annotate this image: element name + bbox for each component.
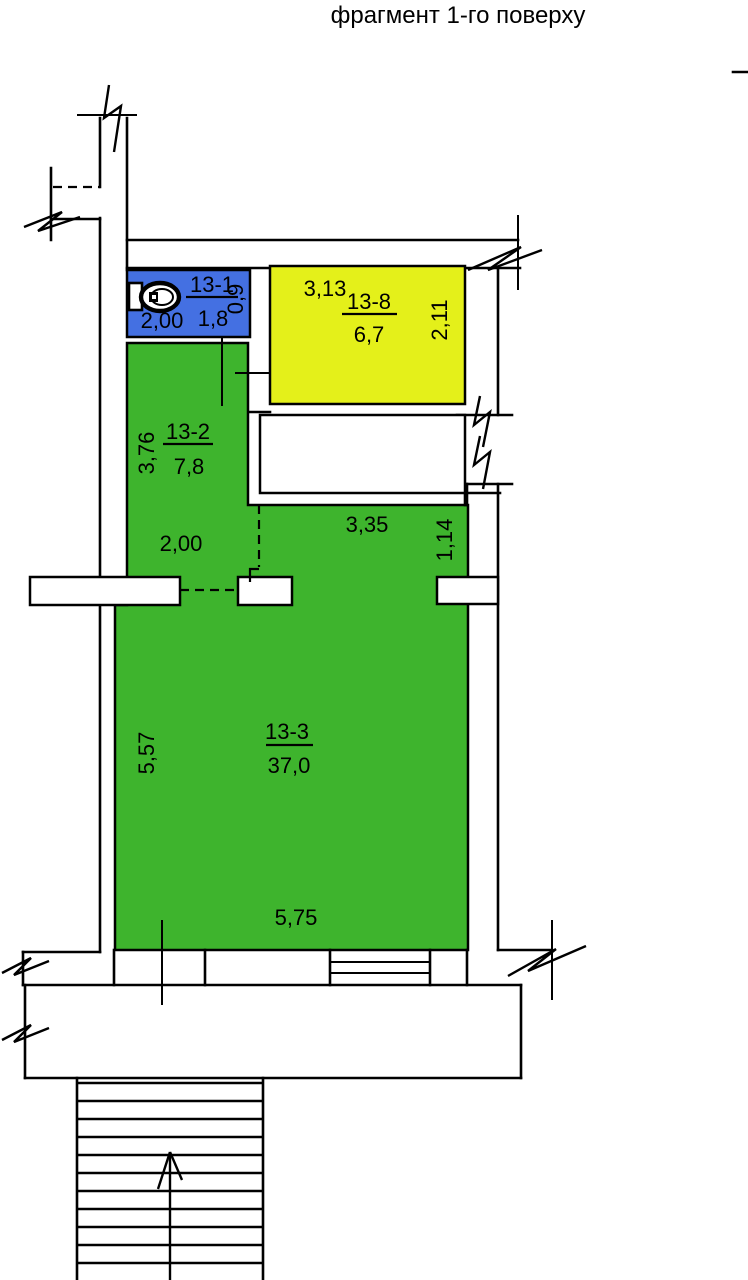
pilaster-middle <box>238 577 292 605</box>
room-13-3-area: 37,0 <box>268 753 311 778</box>
dim-hall-width: 2,00 <box>160 531 203 556</box>
room-13-2-label: 13-2 <box>166 419 210 444</box>
dim-hall-height: 3,76 <box>134 432 159 475</box>
dim-corridor-depth: 1,14 <box>432 519 457 562</box>
toilet-icon <box>129 283 179 311</box>
niche <box>260 415 465 493</box>
plan-title: фрагмент 1-го поверху <box>331 2 586 29</box>
floor-plan: фрагмент 1-го поверху <box>0 0 748 1280</box>
room-13-2-area: 7,8 <box>174 454 205 479</box>
dim-wc-depth: 0,9 <box>223 284 248 315</box>
dim-storage-width: 3,13 <box>304 276 347 301</box>
dim-main-width: 5,75 <box>275 905 318 930</box>
room-13-8-label: 13-8 <box>347 289 391 314</box>
room-13-3-label: 13-3 <box>265 719 309 744</box>
dim-wc-width: 2,00 <box>141 308 184 333</box>
room-13-8-area: 6,7 <box>354 322 385 347</box>
dim-corridor-width: 3,35 <box>346 512 389 537</box>
pilaster-left <box>30 577 180 605</box>
dim-storage-depth: 2,11 <box>427 299 452 340</box>
dim-main-height: 5,57 <box>134 732 159 775</box>
pilaster-right <box>437 577 498 604</box>
